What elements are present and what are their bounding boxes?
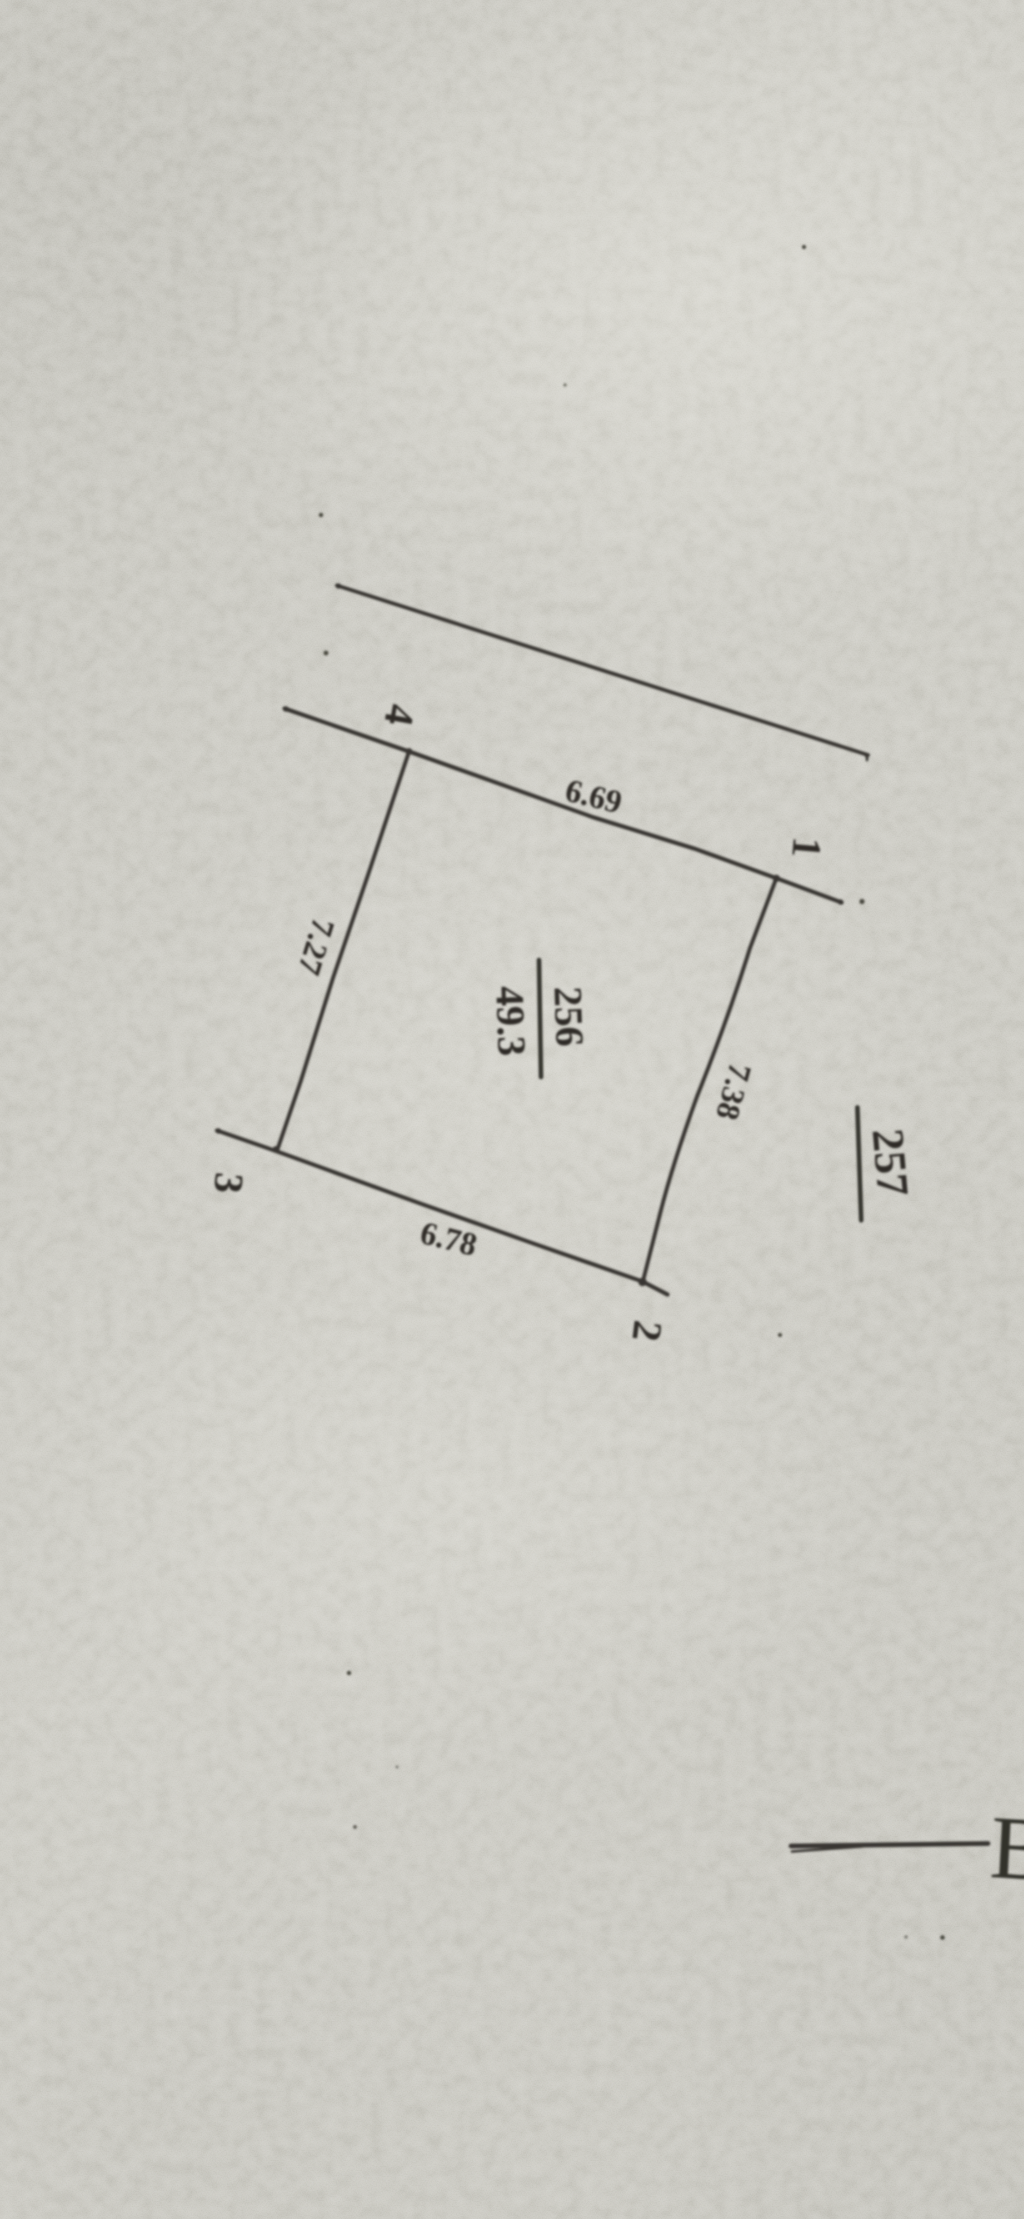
svg-text:49.3: 49.3 [487,985,534,1057]
svg-text:3: 3 [205,1171,253,1195]
svg-text:B: B [988,1798,1024,1900]
svg-text:1: 1 [783,835,831,859]
svg-text:256: 256 [545,986,592,1048]
svg-text:257: 257 [863,1127,919,1199]
